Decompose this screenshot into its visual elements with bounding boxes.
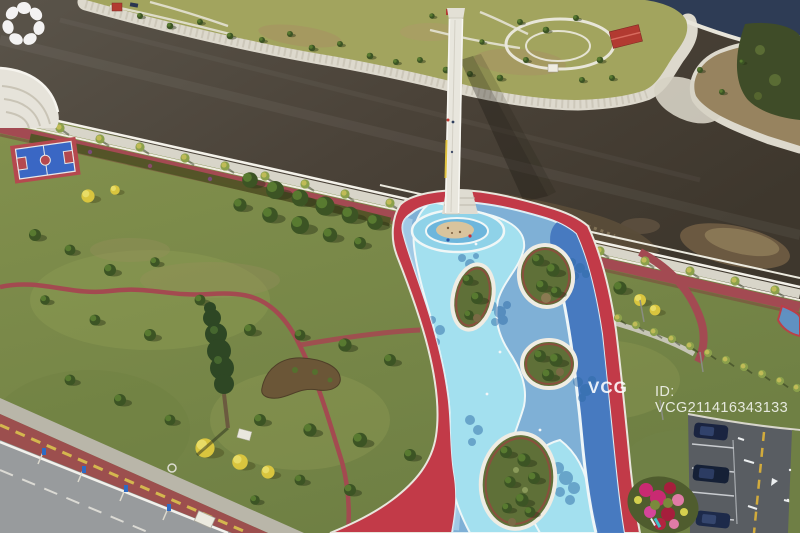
fountain-circle: [412, 210, 504, 252]
small-white-hut: [548, 64, 558, 72]
aerial-photo: VCG ID: VCG211416343133: [0, 0, 800, 533]
parking-lot: [688, 414, 800, 533]
scene-canvas: [0, 0, 800, 533]
sand-island: [436, 222, 474, 239]
islet-house: [112, 3, 122, 11]
